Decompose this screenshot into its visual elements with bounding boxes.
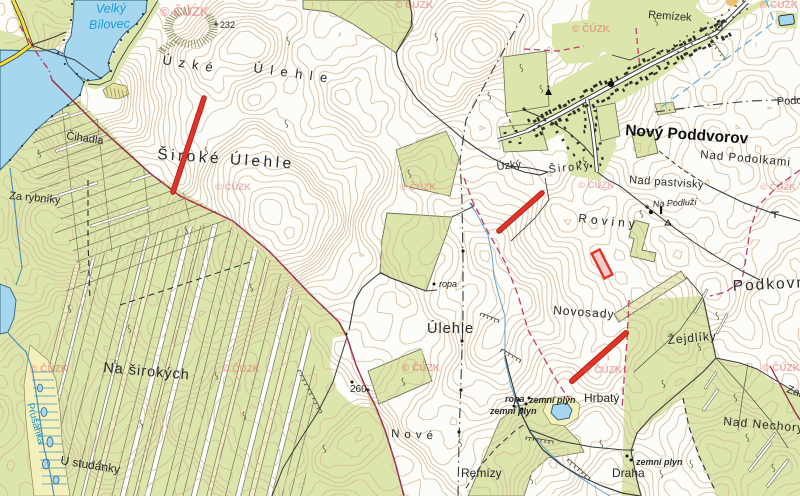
svg-text:ropa: ropa [439,279,457,289]
svg-text:© ČÚZK: © ČÚZK [222,362,261,375]
svg-text:zemní plyn: zemní plyn [528,395,576,405]
svg-text:Bílovec: Bílovec [89,17,131,32]
svg-text:Hrbatý: Hrbatý [584,391,619,405]
svg-text:ropa: ropa [505,394,525,404]
svg-text:Draha: Draha [612,466,645,480]
svg-text:© ČÚZK: © ČÚZK [400,181,436,193]
svg-text:Podkovna: Podkovna [732,274,800,295]
svg-text:232: 232 [220,20,235,30]
svg-text:Nové: Nové [391,428,438,442]
svg-text:Velký: Velký [96,1,127,16]
svg-text:© ČÚZK: © ČÚZK [572,22,611,35]
svg-text:© ČÚZK: © ČÚZK [160,4,210,19]
svg-text:© ČÚZK: © ČÚZK [760,0,799,11]
svg-text:© ČÚZK: © ČÚZK [760,181,796,193]
svg-text:© ČÚZK: © ČÚZK [762,361,800,374]
svg-text:© ČÚZK: © ČÚZK [395,0,434,11]
svg-text:© ČÚZK: © ČÚZK [578,179,614,191]
svg-text:Remízy: Remízy [461,466,502,480]
svg-text:Úzký: Úzký [496,157,522,173]
svg-text:Podolí: Podolí [777,94,800,108]
svg-text:Úlehle: Úlehle [427,320,474,337]
svg-text:zemní plyn: zemní plyn [489,406,537,416]
svg-text:260: 260 [350,384,367,395]
svg-text:zemní plyn: zemní plyn [635,457,683,467]
svg-text:© ČÚZK: © ČÚZK [584,363,623,376]
svg-text:© ČÚZK: © ČÚZK [402,361,441,374]
svg-text:© ČÚZK: © ČÚZK [30,362,69,375]
svg-text:© ČÚZK: © ČÚZK [215,181,251,193]
